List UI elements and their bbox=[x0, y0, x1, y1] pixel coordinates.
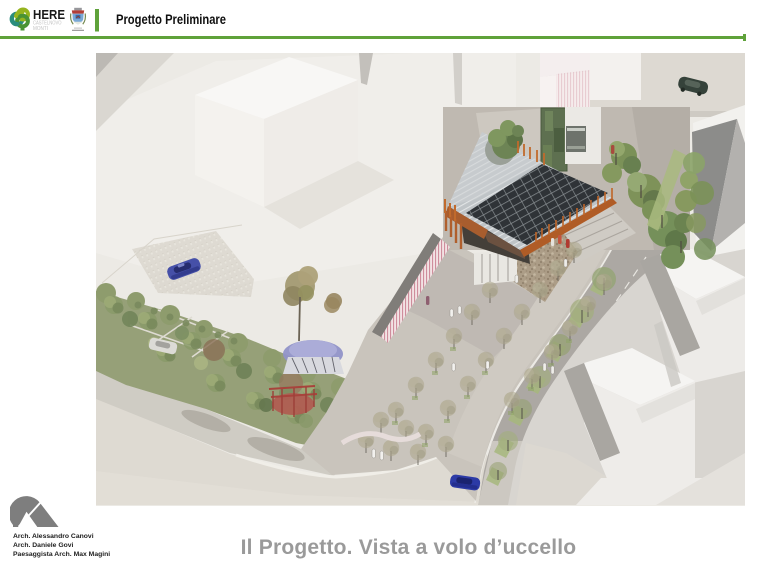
svg-text:MONTI: MONTI bbox=[33, 26, 48, 32]
svg-text:Progetto Preliminare: Progetto Preliminare bbox=[116, 12, 226, 27]
